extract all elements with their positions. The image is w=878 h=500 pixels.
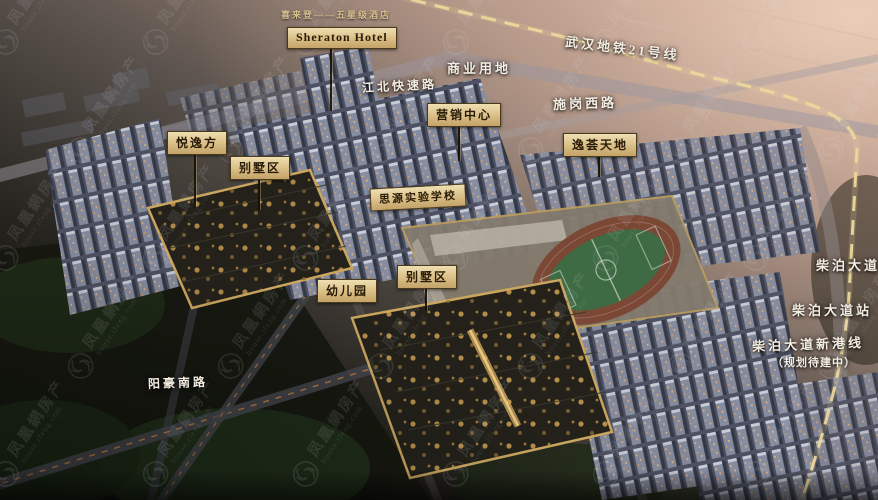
pointer-line	[258, 176, 260, 210]
label-xingang-line: 柴泊大道新港线	[752, 332, 865, 355]
label-villa-area-north: 别墅区	[230, 156, 290, 180]
aerial-masterplan-image: 凤凰網房产 house.ifeng.com 凤凰網房产 house.ifeng.…	[0, 0, 878, 500]
label-villa-area-south: 别墅区	[397, 265, 457, 289]
label-sheraton-hotel: Sheraton Hotel	[287, 27, 397, 49]
label-chaibo-avenue: 柴泊大道	[816, 255, 878, 274]
pointer-line	[458, 123, 460, 161]
hotel-caption: 喜来登——五星级酒店	[281, 8, 391, 21]
pointer-line	[330, 47, 332, 111]
label-yanghao-south-road: 阳豪南路	[148, 373, 209, 392]
label-marketing-center: 营销中心	[427, 103, 501, 127]
aerial-rendering	[0, 0, 878, 500]
label-xingang-line-note: （规划待建中）	[772, 354, 856, 370]
label-yueyifang: 悦逸方	[167, 131, 227, 155]
label-kindergarten: 幼儿园	[317, 279, 377, 303]
label-chaibo-avenue-station: 柴泊大道站	[792, 300, 872, 319]
label-commercial-land: 商业用地	[447, 58, 511, 77]
label-shigang-west-road: 施岗西路	[553, 92, 618, 113]
pointer-line	[194, 151, 196, 207]
label-yihui-tiandi: 逸荟天地	[563, 133, 637, 157]
